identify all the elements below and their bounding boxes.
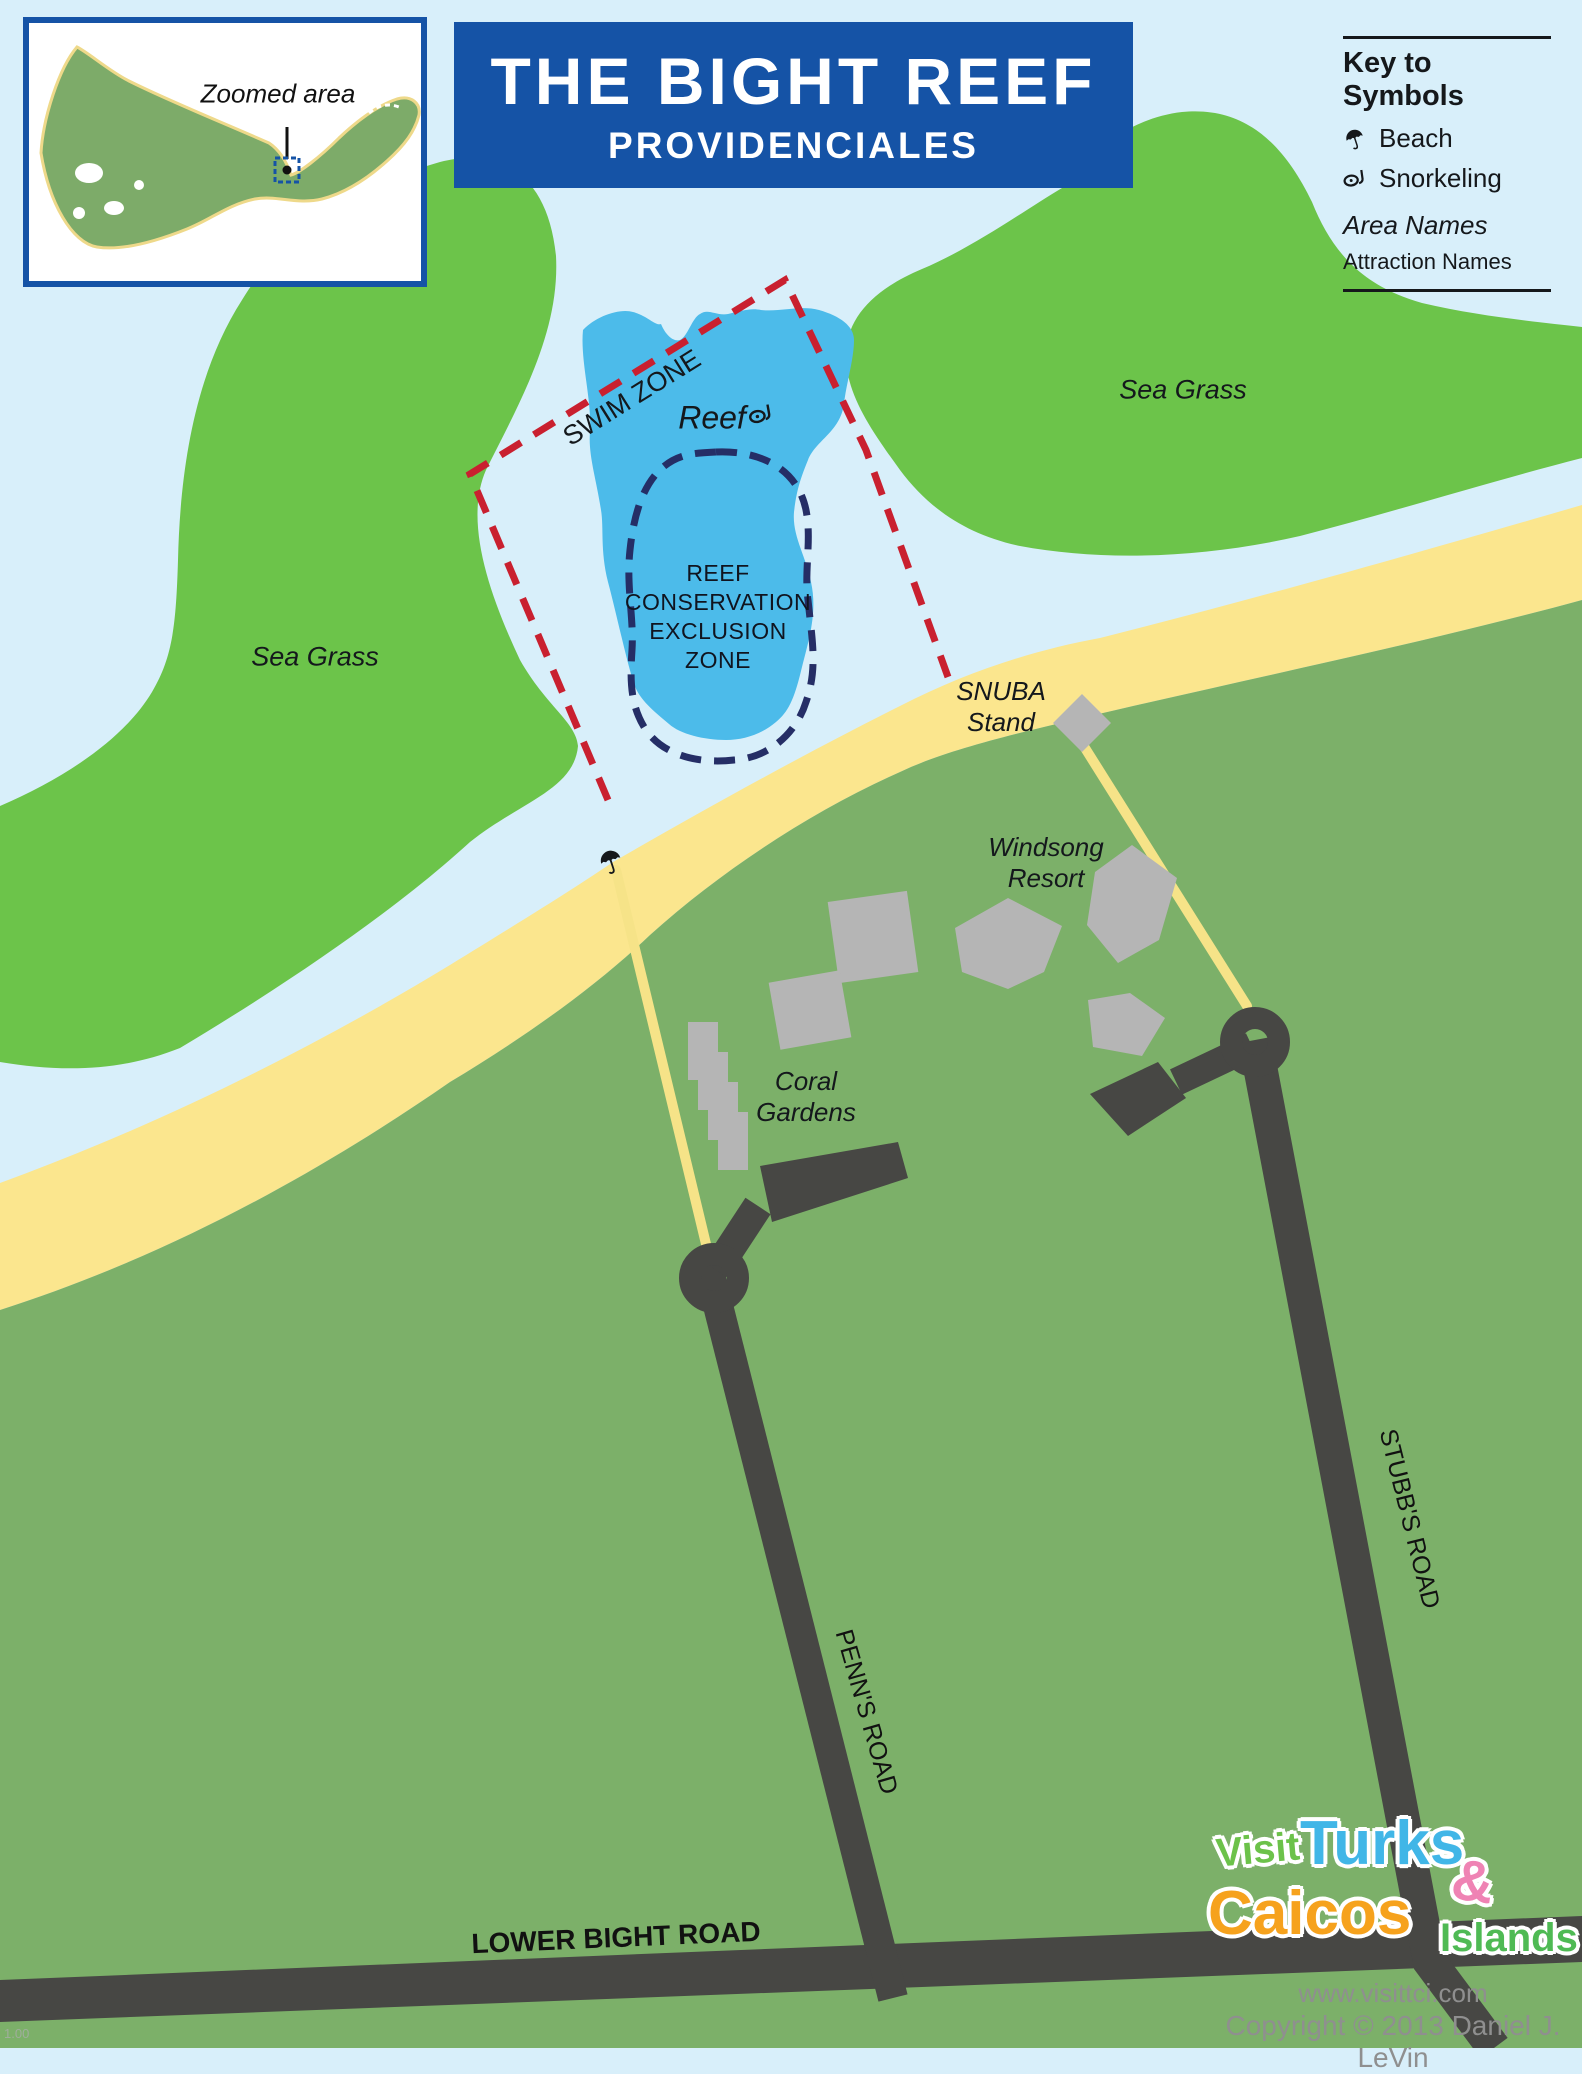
visit-tci-logo: Visit Turks & Caicos Islands www.visittc…	[1200, 1818, 1582, 2058]
copyright-text: Copyright © 2013 Daniel J. LeVin	[1200, 2010, 1582, 2074]
inset-zoomed-area-label: Zoomed area	[201, 79, 356, 110]
legend-attraction-names: Attraction Names	[1343, 249, 1551, 275]
legend-area-names: Area Names	[1343, 210, 1551, 241]
snorkel-icon	[1343, 169, 1367, 189]
legend-item-snorkeling: Snorkeling	[1343, 163, 1551, 194]
attraction-label-snuba-stand: SNUBA Stand	[956, 676, 1046, 738]
logo-ampersand: &	[1448, 1845, 1499, 1917]
version-number: 1.00	[4, 2026, 29, 2041]
area-label-sea-grass-right: Sea Grass	[1119, 375, 1247, 406]
attraction-label-windsong-resort: Windsong Resort	[988, 832, 1103, 894]
attraction-label-coral-gardens: Coral Gardens	[756, 1066, 856, 1128]
logo-word-islands: Islands	[1440, 1916, 1578, 1961]
inset-island-canvas	[29, 23, 421, 281]
reef-exclusion-zone-label: REEF CONSERVATION EXCLUSION ZONE	[625, 559, 811, 675]
map-canvas	[0, 0, 1582, 2048]
logo-word-visit: Visit	[1214, 1824, 1301, 1876]
legend-title: Key to Symbols	[1343, 47, 1551, 113]
area-label-sea-grass-left: Sea Grass	[251, 642, 379, 673]
key-to-symbols-panel: Key to Symbols Beach Snorkeling Area Nam…	[1343, 36, 1551, 292]
beach-umbrella-icon	[1343, 128, 1367, 150]
map-title: THE BIGHT REEF	[490, 43, 1096, 119]
bight-reef-map-poster: { "inset": {"label": "Zoomed area"}, "ba…	[0, 0, 1582, 2048]
resort-building	[769, 970, 852, 1049]
inset-overview-map	[23, 17, 427, 287]
legend-item-label: Beach	[1379, 123, 1453, 154]
logo-word-turks: Turks	[1300, 1808, 1464, 1879]
map-subtitle: PROVIDENCIALES	[608, 125, 979, 167]
logo-word-caicos: Caicos	[1208, 1878, 1411, 1949]
legend-item-beach: Beach	[1343, 123, 1551, 154]
title-banner: THE BIGHT REEF PROVIDENCIALES	[454, 22, 1133, 188]
resort-building	[828, 891, 919, 983]
reef-label: Reef	[678, 400, 746, 437]
website-link[interactable]: www.visittci.com	[1200, 1978, 1582, 2009]
inset-zoomed-area-dot	[283, 166, 292, 175]
legend-item-label: Snorkeling	[1379, 163, 1502, 194]
